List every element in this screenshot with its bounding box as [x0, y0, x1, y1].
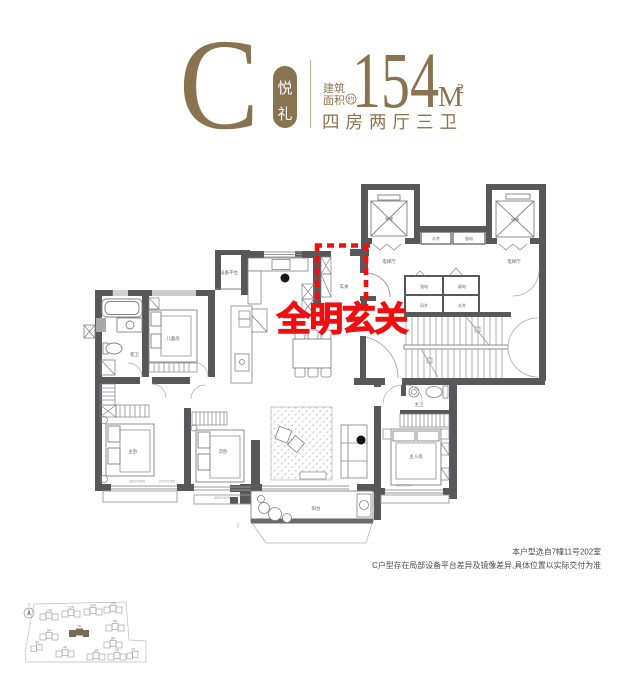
svg-text:13#: 13# [46, 609, 52, 613]
svg-text:弱电: 弱电 [458, 283, 466, 289]
svg-text:客卫: 客卫 [130, 351, 139, 358]
svg-text:风井: 风井 [420, 302, 428, 308]
svg-text:水井: 水井 [458, 302, 466, 308]
svg-text:4#: 4# [63, 646, 67, 650]
svg-text:2#: 2# [115, 649, 119, 653]
svg-text:四房两厅三卫: 四房两厅三卫 [322, 112, 463, 132]
svg-text:次卧: 次卧 [219, 448, 228, 455]
svg-text:2: 2 [457, 82, 464, 97]
svg-text:11#: 11# [90, 604, 96, 608]
svg-text:儿童房: 儿童房 [166, 335, 180, 342]
svg-text:强电: 强电 [465, 235, 473, 241]
svg-text:6#: 6# [47, 629, 51, 633]
svg-text:悦: 悦 [277, 80, 292, 97]
svg-text:电梯: 电梯 [385, 215, 393, 221]
svg-text:3600X3300: 3600X3300 [396, 484, 413, 488]
svg-text:设备平台: 设备平台 [220, 269, 238, 276]
svg-text:强电: 强电 [420, 283, 428, 289]
svg-text:主人房: 主人房 [409, 453, 423, 460]
svg-text:水井: 水井 [432, 235, 440, 241]
svg-text:3#: 3# [94, 649, 98, 653]
svg-text:电梯厅: 电梯厅 [382, 258, 396, 265]
svg-text:8#: 8# [111, 637, 115, 641]
svg-text:1#: 1# [131, 648, 135, 652]
svg-text:本户型选自7幢11号202室: 本户型选自7幢11号202室 [512, 547, 601, 557]
svg-text:全明玄关: 全明玄关 [276, 301, 408, 339]
svg-text:建筑: 建筑 [323, 81, 345, 95]
svg-text:主卧: 主卧 [129, 448, 138, 455]
svg-text:玄关: 玄关 [340, 283, 349, 290]
svg-text:2700X1500: 2700X1500 [159, 480, 176, 484]
svg-text:10#: 10# [110, 602, 116, 606]
svg-text:电梯厅: 电梯厅 [507, 258, 521, 265]
svg-text:12#: 12# [68, 606, 74, 610]
svg-text:C: C [179, 13, 259, 157]
svg-text:3300X3500: 3300X3500 [129, 480, 146, 484]
svg-text:主卫: 主卫 [415, 401, 424, 407]
svg-text:C户型存在局部设备平台差异及镜像差异,具体位置以实际交付为准: C户型存在局部设备平台差异及镜像差异,具体位置以实际交付为准 [372, 560, 601, 570]
svg-text:阳台: 阳台 [312, 505, 321, 512]
svg-text:5#: 5# [35, 641, 39, 645]
svg-text:3300X3100: 3300X3100 [214, 496, 231, 500]
svg-text:9#: 9# [113, 620, 117, 624]
svg-text:7#: 7# [77, 625, 81, 629]
svg-text:礼: 礼 [277, 106, 292, 123]
svg-text:电梯: 电梯 [511, 216, 519, 222]
svg-text:面积: 面积 [323, 94, 345, 107]
